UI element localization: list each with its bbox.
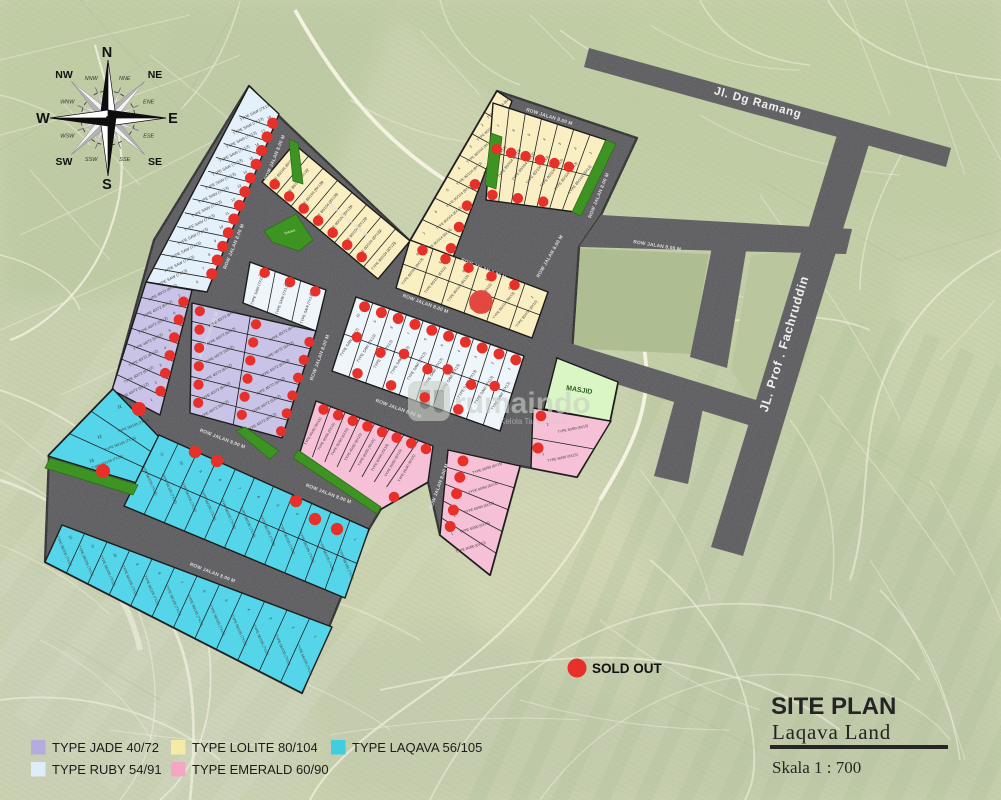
svg-text:ENE: ENE <box>143 100 155 106</box>
svg-text:SITE PLAN: SITE PLAN <box>771 693 896 720</box>
svg-text:E: E <box>168 111 178 127</box>
svg-text:Skala 1 : 700: Skala 1 : 700 <box>772 758 861 777</box>
svg-text:NNE: NNE <box>119 76 131 82</box>
svg-text:NW: NW <box>55 69 73 81</box>
svg-text:N: N <box>102 45 112 61</box>
svg-text:WNW: WNW <box>60 100 75 106</box>
svg-text:TYPE RUBY 54/91: TYPE RUBY 54/91 <box>52 762 162 777</box>
svg-text:TYPE LOLITE 80/104: TYPE LOLITE 80/104 <box>192 740 318 755</box>
svg-text:TYPE JADE 40/72: TYPE JADE 40/72 <box>52 740 159 755</box>
svg-text:ESE: ESE <box>143 133 154 139</box>
svg-text:NE: NE <box>148 69 163 81</box>
svg-text:WSW: WSW <box>60 133 75 139</box>
svg-text:NNW: NNW <box>85 76 99 82</box>
svg-text:Kelola Tanpa Ribet: Kelola Tanpa Ribet <box>500 417 568 426</box>
svg-text:Laqava Land: Laqava Land <box>772 720 891 744</box>
svg-text:SE: SE <box>148 156 162 168</box>
svg-text:SSW: SSW <box>85 157 98 163</box>
svg-text:W: W <box>36 111 50 127</box>
svg-text:SW: SW <box>56 156 73 168</box>
svg-text:TYPE EMERALD 60/90: TYPE EMERALD 60/90 <box>192 762 329 777</box>
svg-text:SOLD OUT: SOLD OUT <box>592 661 663 676</box>
svg-text:S: S <box>102 177 112 193</box>
svg-text:rumaindo: rumaindo <box>454 387 591 420</box>
svg-text:SSE: SSE <box>119 157 130 163</box>
svg-text:TYPE LAQAVA 56/105: TYPE LAQAVA 56/105 <box>352 740 482 755</box>
